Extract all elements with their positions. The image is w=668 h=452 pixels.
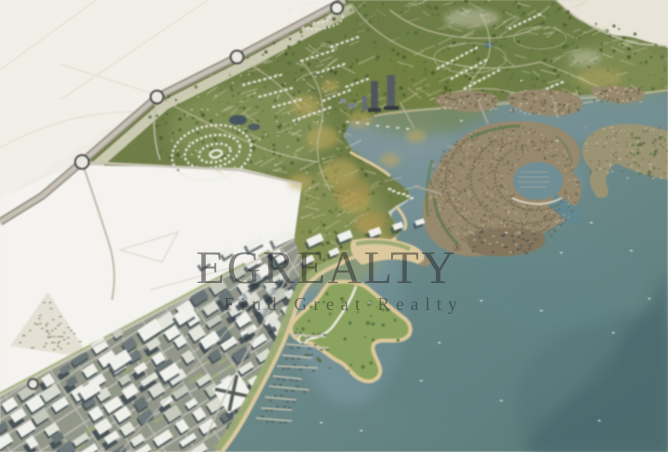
svg-text:®: ® <box>453 242 461 254</box>
svg-text:Find Great Realty: Find Great Realty <box>224 294 463 314</box>
svg-text:EGREALTY: EGREALTY <box>196 242 457 294</box>
